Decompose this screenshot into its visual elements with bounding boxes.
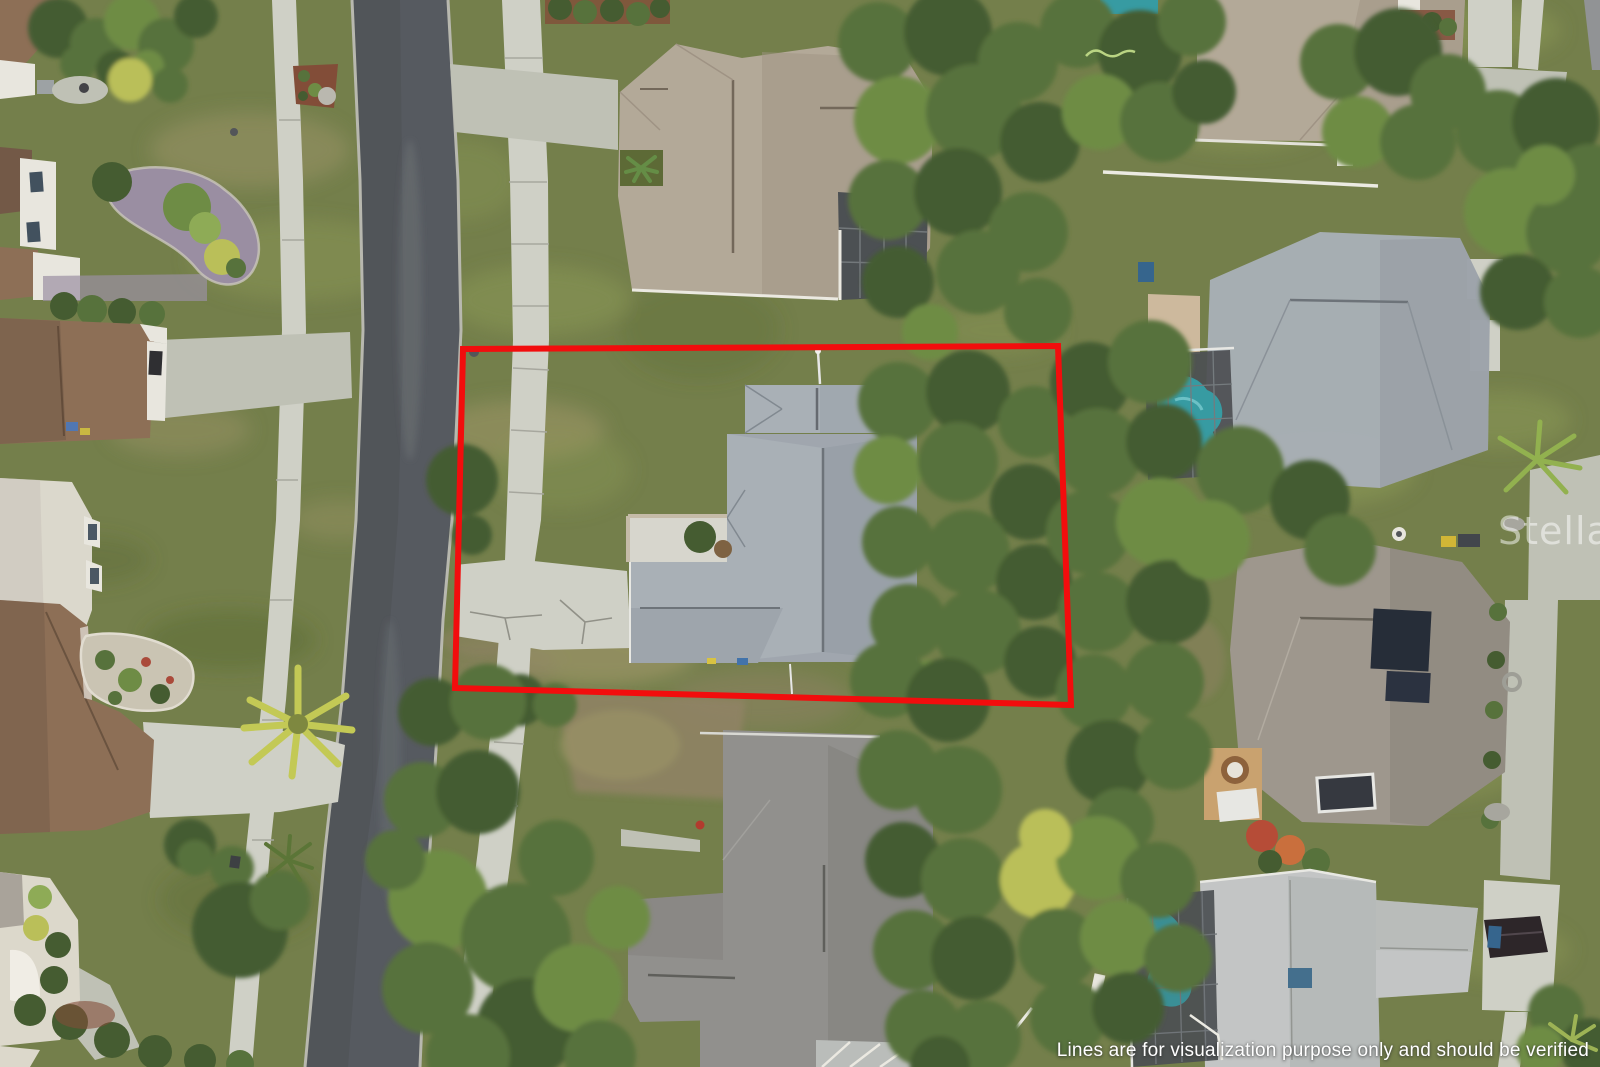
disclaimer-text: Lines are for visualization purpose only… xyxy=(1057,1040,1589,1062)
aerial-photo: Stellar MLS Lines are for visualization … xyxy=(0,0,1600,1067)
haze xyxy=(0,0,1600,1067)
watermark-stellar-mls: Stellar MLS xyxy=(1498,509,1600,553)
